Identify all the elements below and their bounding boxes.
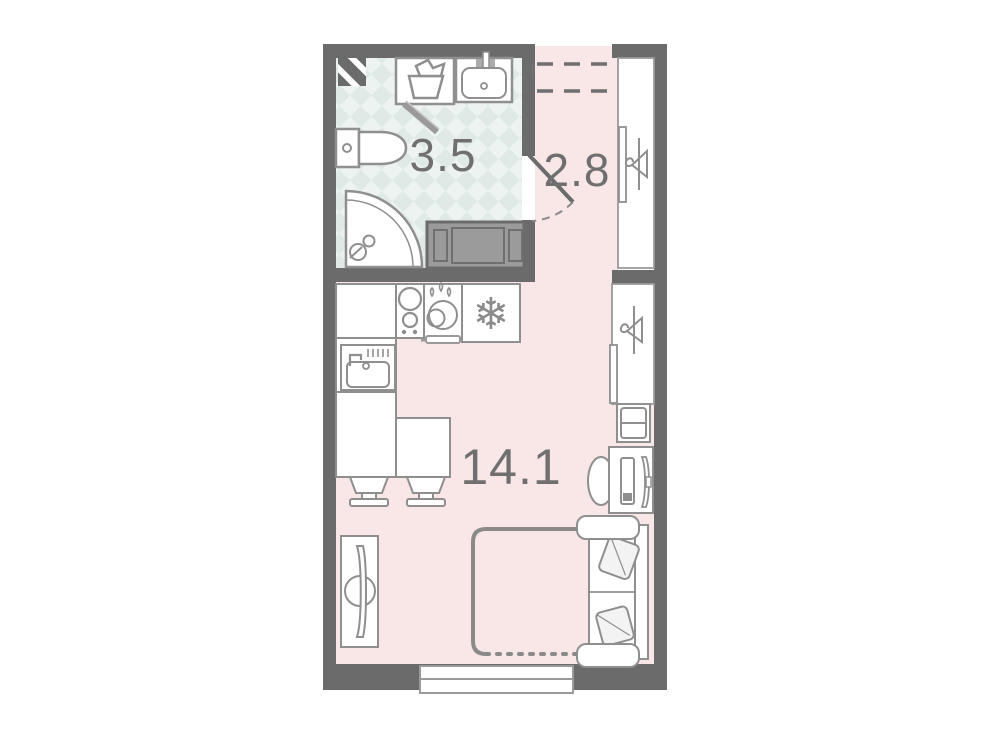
toilet-icon (336, 129, 406, 167)
bathroom-sink-icon (456, 52, 512, 102)
desk-with-chair (588, 447, 653, 513)
wall-top-left (323, 44, 535, 58)
hallway-wardrobe (618, 58, 654, 268)
floor-plan-canvas: ❄ (0, 0, 994, 746)
drawer-unit (617, 404, 650, 442)
wall-bathroom-bottom (323, 268, 535, 282)
floor-plan: ❄ (0, 0, 994, 746)
fridge-snowflake-icon: ❄ (473, 289, 510, 340)
chair (407, 477, 445, 506)
area-label-bathroom: 3.5 (410, 129, 477, 181)
dining-table (396, 418, 450, 477)
wall-left (323, 44, 336, 690)
living-wardrobe (610, 284, 654, 404)
kitchen-sink-icon (341, 345, 395, 390)
washing-machine-icon (396, 58, 454, 104)
chair (350, 477, 388, 506)
fridge-box: ❄ (462, 284, 520, 342)
area-label-hallway: 2.8 (544, 144, 611, 196)
wall-bathroom-right-upper (522, 44, 535, 156)
oven-handle (421, 336, 465, 343)
window-icon (420, 666, 573, 693)
bathroom-cabinet (427, 222, 524, 268)
wall-right (654, 44, 667, 690)
area-label-living: 14.1 (460, 439, 561, 495)
tv-stand-icon (341, 536, 378, 647)
wall-hallway-bottom-right (612, 270, 667, 284)
